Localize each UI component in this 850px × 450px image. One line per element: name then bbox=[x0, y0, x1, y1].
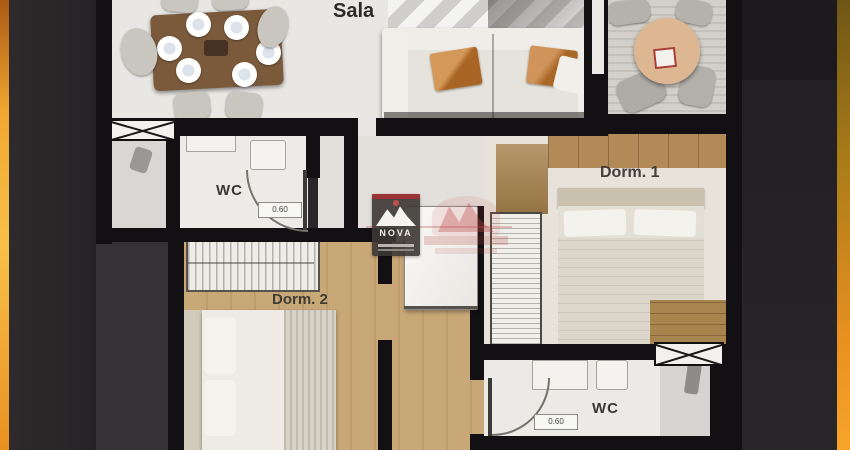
dining-plate bbox=[176, 58, 201, 83]
dorm2-wardrobe bbox=[186, 240, 320, 292]
dorm1-dresser bbox=[650, 300, 726, 346]
dining-chair bbox=[173, 90, 211, 121]
wc1-toilet bbox=[250, 140, 286, 170]
wall-wc2-right-strip bbox=[710, 360, 726, 440]
dorm2-wardrobe-rail bbox=[188, 262, 314, 264]
dining-plate bbox=[157, 36, 182, 61]
wall-balcony-bottom bbox=[598, 114, 742, 134]
sofa-armrest bbox=[382, 30, 408, 122]
wall-hall-left bbox=[344, 118, 358, 242]
watermark-nova-subline bbox=[378, 244, 414, 247]
dining-plate bbox=[186, 12, 211, 37]
dining-plate bbox=[232, 62, 257, 87]
dining-centerpiece bbox=[204, 40, 228, 56]
wall-wc2-bottom bbox=[484, 436, 742, 450]
room-label-sala: Sala bbox=[333, 0, 374, 23]
watermark-nova-text: NOVA bbox=[372, 228, 420, 238]
window-marker bbox=[654, 342, 724, 366]
wc2-toilet bbox=[596, 360, 628, 390]
watermark-nova-subline bbox=[378, 249, 414, 251]
dorm2-pillow bbox=[204, 380, 236, 436]
wall-corridor-dorm2-lower bbox=[378, 340, 392, 450]
background-bottom-left-patch bbox=[96, 242, 170, 450]
dorm2-blanket bbox=[284, 310, 336, 450]
dorm2-bed-headboard bbox=[184, 310, 202, 450]
entry-door-sill bbox=[404, 306, 478, 309]
wall-wc1-right bbox=[306, 134, 320, 178]
wall-left-lower bbox=[168, 230, 184, 450]
wall-under-sofa bbox=[376, 118, 608, 136]
wc1-door-dimension: 0.60 bbox=[258, 202, 302, 218]
balcony-table-item bbox=[653, 47, 677, 69]
wall-wc1-divider bbox=[166, 134, 180, 230]
balcony-door-gap bbox=[592, 0, 604, 74]
dorm1-top-wardrobe bbox=[548, 132, 726, 168]
dorm1-bed-headboard bbox=[558, 188, 704, 208]
watermark-logo-textbar bbox=[435, 248, 497, 254]
watermark-nova-top-stripe bbox=[372, 194, 420, 199]
background-left bbox=[9, 0, 96, 450]
sofa-cushion bbox=[429, 46, 482, 91]
dorm1-pillow bbox=[634, 209, 697, 237]
wc1-sink bbox=[186, 134, 236, 152]
watermark-logo-faint bbox=[424, 196, 510, 260]
dining-plate bbox=[224, 15, 249, 40]
wall-right bbox=[726, 0, 742, 450]
gold-accent-left bbox=[0, 0, 9, 450]
watermark-logo-textbar bbox=[424, 236, 508, 245]
room-label-wc1: WC bbox=[216, 182, 243, 199]
wc2-door-dimension: 0.60 bbox=[534, 414, 578, 430]
gold-accent-right bbox=[837, 0, 850, 450]
room-label-wc2: WC bbox=[592, 400, 619, 417]
dorm2-pillow bbox=[204, 318, 236, 374]
wall-corridor-dorm1-stub bbox=[470, 434, 484, 450]
window-marker bbox=[110, 119, 176, 141]
dorm1-pillow bbox=[564, 209, 627, 237]
sofa-seat-divider bbox=[492, 34, 494, 120]
watermark-nova-badge: NOVA bbox=[372, 194, 420, 256]
room-label-dorm2: Dorm. 2 bbox=[272, 291, 328, 308]
floor-plan-photo: 0.60 0.60 Sala WC Dorm. 1 Dorm. 2 WC NOV… bbox=[0, 0, 850, 450]
background-top-right-corner bbox=[726, 0, 850, 80]
watermark-nova-dot bbox=[393, 200, 399, 206]
room-label-dorm1: Dorm. 1 bbox=[600, 164, 660, 182]
